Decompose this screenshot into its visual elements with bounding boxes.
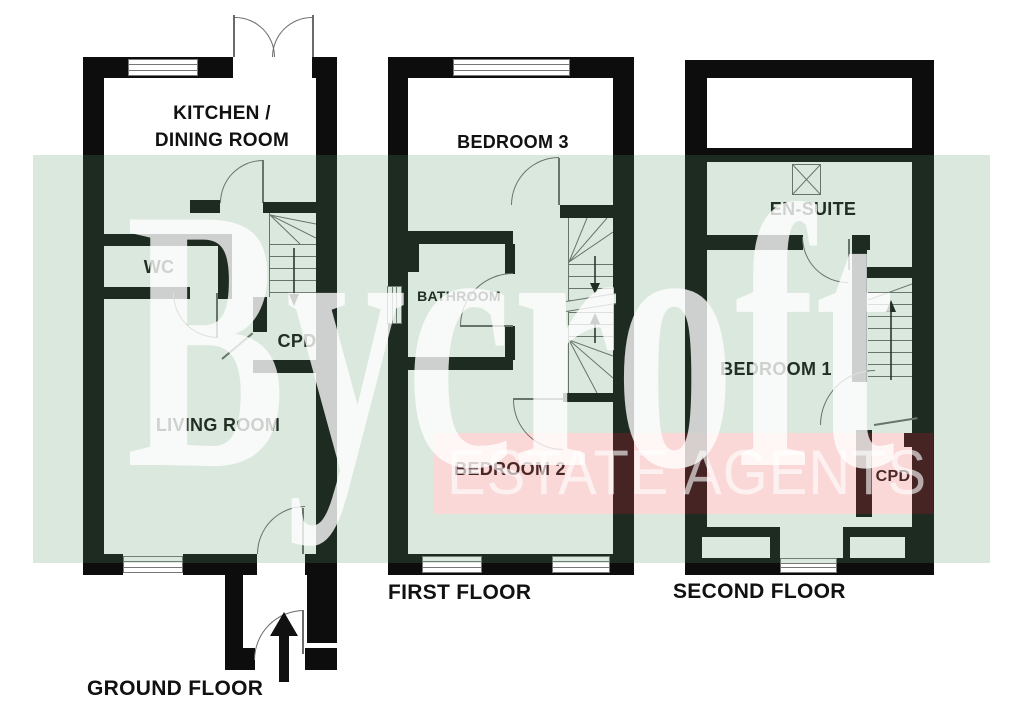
wall-segment [83, 554, 123, 575]
stairs-up-arrow-icon [885, 300, 897, 380]
wall-segment [190, 200, 220, 213]
window [387, 286, 402, 324]
door-leaf [221, 333, 253, 360]
door-leaf [216, 293, 218, 337]
wall-segment [613, 57, 634, 575]
door-leaf [302, 610, 304, 654]
wall-segment [307, 575, 337, 643]
skylight-icon [792, 164, 821, 195]
wall-segment [904, 433, 918, 447]
room-label-bedroom2: BEDROOM 2 [454, 459, 566, 480]
wall-segment [405, 244, 419, 272]
door-leaf [262, 160, 264, 203]
stairs-down-arrow-icon [589, 256, 601, 294]
stairs-winder-lines [270, 214, 316, 244]
window [128, 59, 198, 76]
wall-segment [912, 60, 934, 575]
wall-segment [505, 326, 515, 360]
wall-segment [305, 554, 337, 575]
wall-segment [253, 360, 337, 373]
door-leaf [558, 158, 560, 205]
wall-segment [685, 148, 934, 162]
room-label-kitchen-line2: DINING ROOM [155, 127, 289, 154]
wall-segment [253, 297, 267, 332]
wall-segment [401, 357, 513, 370]
wall-segment [218, 234, 232, 299]
wall-segment [104, 234, 218, 246]
room-label-bedroom1: BEDROOM 1 [720, 359, 832, 380]
room-label-living-room: LIVING ROOM [156, 415, 280, 436]
room-label-cpd-ground: CPD [278, 331, 317, 352]
wall-segment [856, 430, 872, 447]
door-leaf [848, 239, 850, 270]
door-swing-arc [802, 237, 848, 283]
room-label-wc: WC [144, 257, 175, 278]
second-floor-title: SECOND FLOOR [673, 580, 846, 604]
wall-segment [563, 393, 614, 402]
room-label-kitchen: KITCHEN / DINING ROOM [155, 100, 289, 154]
wall-segment [405, 231, 513, 244]
door-swing-arc [235, 17, 275, 57]
door-swing-arc [272, 17, 312, 57]
ground-floor-title: GROUND FLOOR [87, 677, 263, 701]
door-swing-arc [511, 157, 559, 205]
door-swing-arc [220, 160, 263, 203]
wall-segment [183, 554, 257, 575]
door-swing-arc [257, 506, 305, 554]
wall-segment [852, 235, 867, 382]
floorplan-canvas: KITCHEN / DINING ROOM WC CPD LIVING ROOM… [0, 0, 1024, 724]
green-watermark-band [933, 433, 990, 514]
first-floor-title: FIRST FLOOR [388, 581, 531, 605]
door-leaf [302, 508, 304, 554]
wall-segment [856, 447, 872, 517]
wall-segment [685, 60, 934, 78]
room-label-kitchen-line1: KITCHEN / [155, 100, 289, 127]
eaves-recess [702, 537, 770, 558]
wall-segment [560, 205, 613, 218]
wall-segment [263, 202, 316, 213]
wall-segment [225, 648, 255, 670]
door-swing-arc [173, 293, 218, 338]
entrance-arrow-icon [270, 612, 298, 682]
room-label-cpd-second: CPD [876, 468, 911, 486]
window [123, 556, 183, 573]
window [422, 556, 482, 573]
window [552, 556, 610, 573]
wall-segment [707, 235, 803, 250]
wall-segment [865, 267, 912, 278]
door-leaf [312, 15, 314, 57]
wall-segment [316, 57, 337, 575]
wall-segment [305, 648, 337, 670]
door-swing-arc [513, 400, 563, 450]
window [453, 59, 570, 76]
stairs-winder-lines [569, 340, 613, 393]
door-leaf [513, 398, 563, 400]
room-label-bedroom3: BEDROOM 3 [457, 132, 569, 153]
door-leaf [460, 325, 513, 327]
stairs-up-arrow-icon [589, 313, 601, 343]
eaves-recess [850, 537, 905, 558]
wall-segment [505, 244, 515, 274]
wall-segment [83, 57, 104, 575]
room-label-bathroom: BATHROOM [417, 288, 501, 304]
stairs-winder-lines [868, 280, 912, 300]
room-label-ensuite: EN-SUITE [770, 199, 856, 220]
stairs-down-arrow-icon [288, 248, 300, 306]
wall-segment [685, 60, 707, 575]
window [780, 558, 837, 573]
